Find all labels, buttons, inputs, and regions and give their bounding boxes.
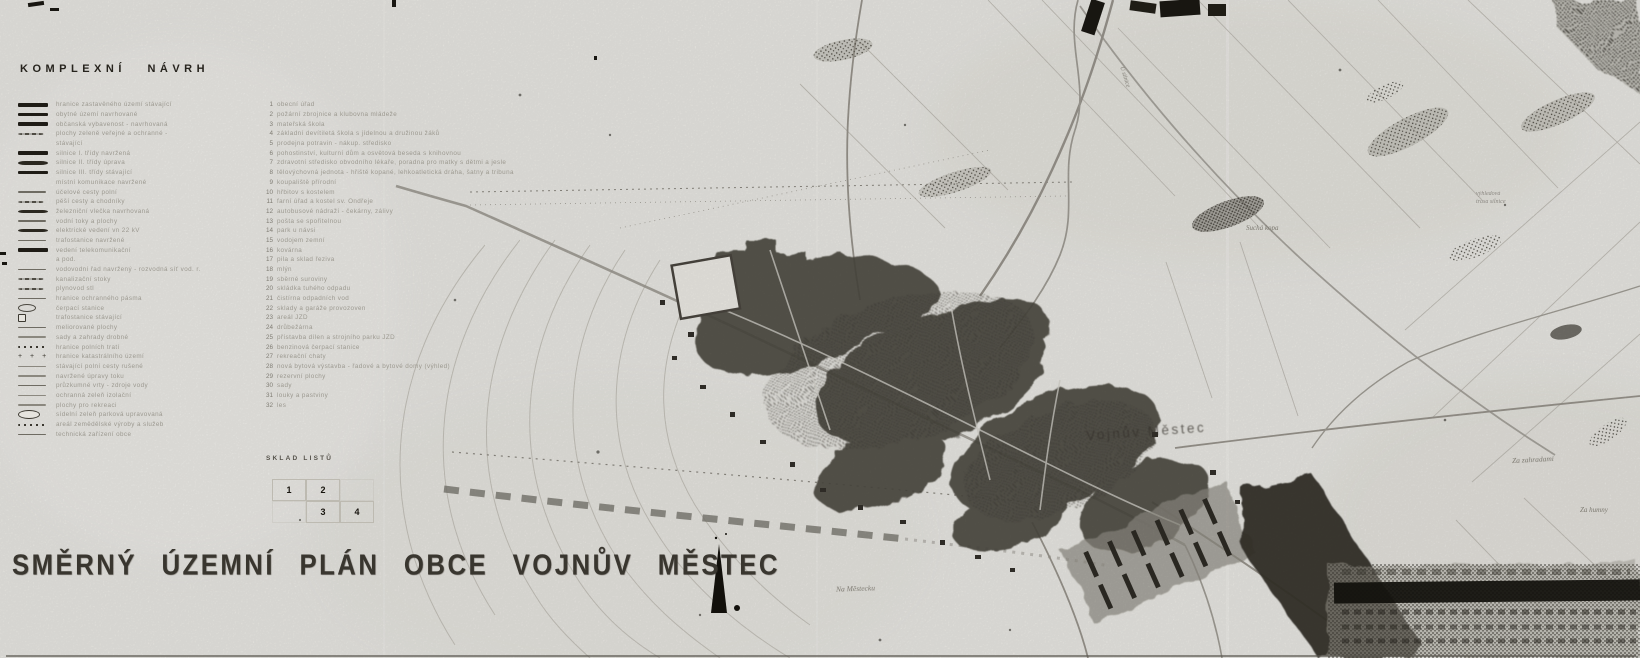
legend-symbol-shape — [18, 434, 46, 435]
legend-item-label: čerpací stanice — [56, 305, 104, 312]
legend-row: stávající — [18, 139, 268, 149]
legend-row: elektrické vedení vn 22 kV — [18, 226, 268, 236]
list-item-label: tělovýchovná jednota - hřiště kopané, le… — [277, 169, 514, 176]
legend-item-label: a pod. — [56, 256, 76, 263]
legend-row: hranice polních tratí — [18, 342, 268, 352]
numbered-list-item: 29rezervní plochy — [260, 371, 605, 381]
list-item-number: 11 — [260, 198, 277, 205]
list-item-label: sady — [277, 382, 292, 389]
legend-symbol-bold-icon — [18, 151, 56, 155]
numbered-list-item: 7zdravotní středisko obvodního lékaře, p… — [260, 158, 605, 168]
legend-item-label: místní komunikace navržené — [56, 179, 147, 186]
list-item-number: 28 — [260, 363, 277, 370]
legend-item-label: ochranná zeleň izolační — [56, 392, 131, 399]
legend-item-label: železniční vlečka navrhovaná — [56, 208, 149, 215]
legend-row: občanská vybavenost - navrhovaná — [18, 119, 268, 129]
legend-item-label: hranice zastavěného území stávající — [56, 101, 172, 108]
legend-row: pěší cesty a chodníky — [18, 197, 268, 207]
legend-item-label: navržené úpravy toku — [56, 373, 124, 380]
legend-symbol-boldwavy-icon — [18, 161, 56, 164]
legend-symbol-bold-icon — [18, 248, 56, 252]
legend-item-label: kanalizační stoky — [56, 276, 111, 283]
legend-item-label: průzkumné vrty - zdroje vody — [56, 382, 148, 389]
legend-row: hranice ochranného pásma — [18, 294, 268, 304]
sheet-cell: 1 — [272, 479, 306, 501]
numbered-list-item: 14park u návsi — [260, 226, 605, 236]
legend-list: hranice zastavěného území stávajícíobytn… — [18, 100, 268, 439]
sheet-index-label: SKLAD LISTŮ — [266, 455, 333, 462]
numbered-list-item: 2požární zbrojnice a klubovna mládeže — [260, 110, 605, 120]
legend-row: železniční vlečka navrhovaná — [18, 207, 268, 217]
list-item-number: 24 — [260, 324, 277, 331]
numbered-list-item: 30sady — [260, 381, 605, 391]
legend-item-label: obytné území navrhované — [56, 111, 138, 118]
numbered-list-item: 16kovárna — [260, 245, 605, 255]
legend-item-label: silnice III. třídy stávající — [56, 169, 132, 176]
list-item-number: 26 — [260, 344, 277, 351]
legend-symbol-thin-icon — [18, 240, 56, 241]
sheet-cell: 3 — [306, 501, 340, 523]
list-item-number: 4 — [260, 130, 277, 137]
legend-symbol-shape — [18, 229, 48, 232]
legend-row: plochy pro rekreaci — [18, 400, 268, 410]
list-item-number: 6 — [260, 150, 277, 157]
legend-item-label: sídelní zeleň parková upravovaná — [56, 411, 163, 418]
legend-row: trafostanice navržené — [18, 236, 268, 246]
legend-symbol-shape — [18, 336, 46, 338]
legend-symbol-boldwavy-icon — [18, 210, 56, 213]
list-item-number: 22 — [260, 305, 277, 312]
numbered-list-item: 13pošta se spořitelnou — [260, 216, 605, 226]
list-item-label: čistírna odpadních vod — [277, 295, 349, 302]
numbered-list-item: 10hřbitov s kostelem — [260, 187, 605, 197]
list-item-label: pila a sklad řeziva — [277, 256, 335, 263]
legend-item-label: silnice II. třídy úprava — [56, 159, 125, 166]
legend-row: místní komunikace navržené — [18, 178, 268, 188]
legend-row: silnice III. třídy stávající — [18, 168, 268, 178]
list-item-label: kovárna — [277, 247, 302, 254]
legend-symbol-script-icon — [18, 288, 56, 290]
legend-symbol-shape — [18, 220, 46, 221]
numbered-list-item: 8tělovýchovná jednota - hřiště kopané, l… — [260, 168, 605, 178]
legend-symbol-shape — [18, 314, 26, 322]
list-item-number: 27 — [260, 353, 277, 360]
legend-symbol-script-icon — [18, 278, 56, 280]
legend-row: navržené úpravy toku — [18, 371, 268, 381]
legend-symbol-shape — [18, 298, 46, 299]
legend-item-label: hranice katastrálního území — [56, 353, 144, 360]
list-item-number: 7 — [260, 159, 277, 166]
numbered-list-item: 9koupaliště přírodní — [260, 178, 605, 188]
legend-symbol-bold-icon — [18, 103, 56, 107]
numbered-list-item: 15vodojem zemní — [260, 236, 605, 246]
legend-symbol-shape — [18, 404, 46, 406]
list-item-label: rekreační chaty — [277, 353, 326, 360]
map-note-label: výhledová trasa silnice — [1476, 190, 1506, 206]
legend-symbol-shape — [18, 327, 46, 328]
legend-symbol-shape — [18, 191, 46, 192]
list-item-label: prodejna potravin - nákup. středisko — [277, 140, 392, 147]
legend-symbol-thin-icon — [18, 298, 56, 299]
legend-symbol-bold-icon — [18, 113, 56, 117]
hill-label: Suchá kopa — [1246, 224, 1278, 232]
legend-symbol-thin-icon — [18, 269, 56, 270]
legend-symbol-bold-icon — [18, 171, 56, 175]
legend-symbol-shape — [18, 375, 46, 377]
list-item-label: les — [277, 402, 286, 409]
legend-item-label: hranice ochranného pásma — [56, 295, 142, 302]
legend-symbol-script-icon — [18, 201, 56, 203]
page-title: SMĚRNÝ ÚZEMNÍ PLÁN OBCE VOJNŮV MĚSTEC — [12, 548, 780, 582]
list-item-label: přístavba dílen a strojního parku JZD — [277, 334, 395, 341]
legend-item-label: trafostanice stávající — [56, 314, 122, 321]
legend-symbol-light-icon — [18, 395, 56, 397]
legend-symbol-shape — [18, 151, 48, 155]
list-item-number: 10 — [260, 189, 277, 196]
legend-symbol-shape — [18, 385, 46, 386]
legend-row: plynovod stl — [18, 284, 268, 294]
legend-item-label: účelové cesty polní — [56, 189, 117, 196]
legend-symbol-shape — [18, 171, 48, 175]
legend-symbol-thin-icon — [18, 220, 56, 221]
legend-row: plochy zeleně veřejné a ochranné - — [18, 129, 268, 139]
legend-item-label: vodní toky a plochy — [56, 218, 118, 225]
list-item-label: koupaliště přírodní — [277, 179, 336, 186]
numbered-list-item: 22sklady a garáže provozoven — [260, 303, 605, 313]
legend-symbol-shape — [18, 122, 48, 126]
list-item-number: 3 — [260, 121, 277, 128]
list-item-label: pošta se spořitelnou — [277, 218, 341, 225]
list-item-label: pohostinství, kulturní dům a osvětová be… — [277, 150, 461, 157]
legend-item-label: areál zemědělské výroby a služeb — [56, 421, 164, 428]
legend-symbol-thin-icon — [18, 191, 56, 192]
legend-symbol-shape — [18, 210, 48, 213]
list-item-number: 15 — [260, 237, 277, 244]
list-item-label: rezervní plochy — [277, 373, 326, 380]
list-item-number: 29 — [260, 373, 277, 380]
legend-row: vodovodní řad navržený - rozvodná síť vo… — [18, 265, 268, 275]
legend-symbol-ellipse-icon — [18, 304, 56, 312]
list-item-number: 8 — [260, 169, 277, 176]
legend-symbol-shape — [18, 103, 48, 107]
legend-symbol-script-icon — [18, 133, 56, 135]
legend-row: kanalizační stoky — [18, 274, 268, 284]
numbered-list-item: 28nová bytová výstavba - řadové a bytové… — [260, 362, 605, 372]
legend-item-label: hranice polních tratí — [56, 344, 120, 351]
sheet-grid-row: 12 — [272, 479, 374, 501]
list-item-label: zdravotní středisko obvodního lékaře, po… — [277, 159, 506, 166]
legend-row: + + +hranice katastrálního území — [18, 352, 268, 362]
list-item-number: 13 — [260, 218, 277, 225]
numbered-list-item: 31louky a pastviny — [260, 391, 605, 401]
legend-row: technická zařízení obce — [18, 429, 268, 439]
legend-symbol-shape — [18, 366, 46, 368]
numbered-list-item: 5prodejna potravin - nákup. středisko — [260, 139, 605, 149]
list-item-number: 31 — [260, 392, 277, 399]
legend-row: silnice I. třídy navržená — [18, 148, 268, 158]
field-label-south: Na Městecku — [836, 583, 875, 593]
legend-symbol-shape — [18, 304, 36, 312]
legend-symbol-ellipseO-icon — [18, 410, 56, 419]
legend-symbol-shape — [18, 346, 46, 348]
list-item-number: 17 — [260, 256, 277, 263]
legend-symbol-boldwavy-icon — [18, 229, 56, 232]
list-item-number: 14 — [260, 227, 277, 234]
list-item-label: farní úřad a kostel sv. Ondřeje — [277, 198, 373, 205]
legend-row: stávající polní cesty rušené — [18, 362, 268, 372]
numbered-list-item: 23areál JZD — [260, 313, 605, 323]
legend-row: ochranná zeleň izolační — [18, 391, 268, 401]
legend-symbol-shape — [18, 240, 46, 241]
legend-symbol-bold-icon — [18, 122, 56, 126]
numbered-list-item: 18mlýn — [260, 265, 605, 275]
numbered-list-item: 4základní devítiletá škola s jídelnou a … — [260, 129, 605, 139]
list-item-label: sběrné suroviny — [277, 276, 327, 283]
legend-symbol-shape — [18, 113, 48, 117]
list-item-label: hřbitov s kostelem — [277, 189, 335, 196]
legend-symbol-cross-icon: + + + — [18, 353, 56, 360]
legend-row: účelové cesty polní — [18, 187, 268, 197]
list-item-label: areál JZD — [277, 314, 308, 321]
list-item-number: 1 — [260, 101, 277, 108]
list-item-number: 30 — [260, 382, 277, 389]
legend-symbol-shape — [18, 395, 46, 397]
legend-symbol-dots-icon — [18, 346, 56, 348]
legend-symbol-shape — [18, 201, 44, 203]
list-item-number: 21 — [260, 295, 277, 302]
legend-symbol-thin-icon — [18, 327, 56, 328]
list-item-label: autobusové nádraží - čekárny, zálivy — [277, 208, 393, 215]
list-item-label: základní devítiletá škola s jídelnou a d… — [277, 130, 440, 137]
sheet-grid-row: 34 — [272, 501, 374, 523]
sheet-index-grid: 1234 — [272, 479, 374, 523]
legend-item-label: trafostanice navržené — [56, 237, 125, 244]
legend-row: trafostanice stávající — [18, 313, 268, 323]
list-item-label: benzinová čerpací stanice — [277, 344, 360, 351]
list-item-number: 32 — [260, 402, 277, 409]
legend-item-label: plochy zeleně veřejné a ochranné - — [56, 130, 168, 137]
sheet-cell: 4 — [340, 501, 374, 523]
legend-item-label: vodovodní řad navržený - rozvodná síť vo… — [56, 266, 201, 273]
legend-symbol-light-icon — [18, 336, 56, 338]
legend-row: a pod. — [18, 255, 268, 265]
list-item-number: 25 — [260, 334, 277, 341]
legend-item-label: stávající — [56, 140, 83, 147]
legend-symbol-dots-icon — [18, 424, 56, 426]
list-item-number: 12 — [260, 208, 277, 215]
legend-symbol-shape — [18, 424, 46, 426]
legend-symbol-shape — [18, 278, 44, 280]
list-item-number: 18 — [260, 266, 277, 273]
list-item-number: 2 — [260, 111, 277, 118]
list-item-number: 23 — [260, 314, 277, 321]
numbered-list-item: 32les — [260, 400, 605, 410]
legend-item-label: pěší cesty a chodníky — [56, 198, 125, 205]
list-item-label: sklady a garáže provozoven — [277, 305, 366, 312]
list-item-label: vodojem zemní — [277, 237, 325, 244]
sheet-cell — [272, 501, 306, 523]
legend-row: sady a zahrady drobné — [18, 333, 268, 343]
numbered-list-item: 3mateřská škola — [260, 119, 605, 129]
legend-item-label: meliorované plochy — [56, 324, 117, 331]
list-item-label: park u návsi — [277, 227, 316, 234]
numbered-list-item: 12autobusové nádraží - čekárny, zálivy — [260, 207, 605, 217]
legend-symbol-thin-icon — [18, 434, 56, 435]
scanned-plan-page: KOMPLEXNÍ NÁVRH hranice zastavěného územ… — [0, 0, 1640, 658]
map-note-line2: trasa silnice — [1476, 198, 1506, 206]
list-item-number: 20 — [260, 285, 277, 292]
list-item-number: 19 — [260, 276, 277, 283]
sheet-cell — [340, 479, 374, 501]
numbered-list-item: 21čistírna odpadních vod — [260, 294, 605, 304]
numbered-list-item: 19sběrné suroviny — [260, 274, 605, 284]
numbered-list-item: 11farní úřad a kostel sv. Ondřeje — [260, 197, 605, 207]
legend-symbol-sq-icon — [18, 314, 56, 322]
legend-symbol-thin-icon — [18, 385, 56, 386]
legend-item-label: technická zařízení obce — [56, 431, 131, 438]
sheet-cell: 2 — [306, 479, 340, 501]
legend-row: meliorované plochy — [18, 323, 268, 333]
list-item-label: skládka tuhého odpadu — [277, 285, 351, 292]
legend-item-label: plynovod stl — [56, 285, 94, 292]
legend-symbol-shape — [18, 288, 44, 290]
legend-row: areál zemědělské výroby a služeb — [18, 420, 268, 430]
legend-row: hranice zastavěného území stávající — [18, 100, 268, 110]
legend-row: vedení telekomunikační — [18, 245, 268, 255]
legend-item-label: plochy pro rekreaci — [56, 402, 117, 409]
legend-item-label: stávající polní cesty rušené — [56, 363, 143, 370]
legend-item-label: silnice I. třídy navržená — [56, 150, 130, 157]
legend-symbol-shape — [18, 248, 48, 252]
numbered-list-item: 26benzinová čerpací stanice — [260, 342, 605, 352]
legend-symbol-light-icon — [18, 366, 56, 368]
list-item-label: mlýn — [277, 266, 292, 273]
legend-item-label: vedení telekomunikační — [56, 247, 131, 254]
numbered-list-item: 6pohostinství, kulturní dům a osvětová b… — [260, 148, 605, 158]
numbered-list-item: 17pila a sklad řeziva — [260, 255, 605, 265]
numbered-list-item: 20skládka tuhého odpadu — [260, 284, 605, 294]
list-item-number: 16 — [260, 247, 277, 254]
list-item-number: 9 — [260, 179, 277, 186]
list-item-label: drůbežárna — [277, 324, 313, 331]
section-title: KOMPLEXNÍ NÁVRH — [20, 63, 209, 75]
legend-row: průzkumné vrty - zdroje vody — [18, 381, 268, 391]
numbered-list: 1obecní úřad2požární zbrojnice a klubovn… — [260, 100, 605, 410]
legend-row: vodní toky a plochy — [18, 216, 268, 226]
numbered-list-item: 24drůbežárna — [260, 323, 605, 333]
legend-item-label: elektrické vedení vn 22 kV — [56, 227, 140, 234]
numbered-list-item: 1obecní úřad — [260, 100, 605, 110]
legend-row: obytné území navrhované — [18, 110, 268, 120]
map-note-line1: výhledová — [1476, 190, 1506, 198]
list-item-label: louky a pastviny — [277, 392, 328, 399]
legend-symbol-shape — [18, 161, 48, 164]
list-item-label: požární zbrojnice a klubovna mládeže — [277, 111, 397, 118]
legend-row: silnice II. třídy úprava — [18, 158, 268, 168]
numbered-list-item: 27rekreační chaty — [260, 352, 605, 362]
list-item-label: nová bytová výstavba - řadové a bytové d… — [277, 363, 450, 370]
legend-symbol-shape — [18, 269, 46, 270]
list-item-label: mateřská škola — [277, 121, 325, 128]
legend-symbol-light-icon — [18, 375, 56, 377]
legend-symbol-light-icon — [18, 404, 56, 406]
list-item-label: obecní úřad — [277, 101, 315, 108]
field-label-southeast: Za humny — [1580, 506, 1608, 514]
legend-item-label: občanská vybavenost - navrhovaná — [56, 121, 168, 128]
legend-symbol-shape — [18, 133, 44, 135]
legend-symbol-shape — [18, 410, 40, 419]
numbered-list-item: 25přístavba dílen a strojního parku JZD — [260, 333, 605, 343]
legend-row: čerpací stanice — [18, 303, 268, 313]
legend-item-label: sady a zahrady drobné — [56, 334, 128, 341]
list-item-number: 5 — [260, 140, 277, 147]
legend-row: sídelní zeleň parková upravovaná — [18, 410, 268, 420]
